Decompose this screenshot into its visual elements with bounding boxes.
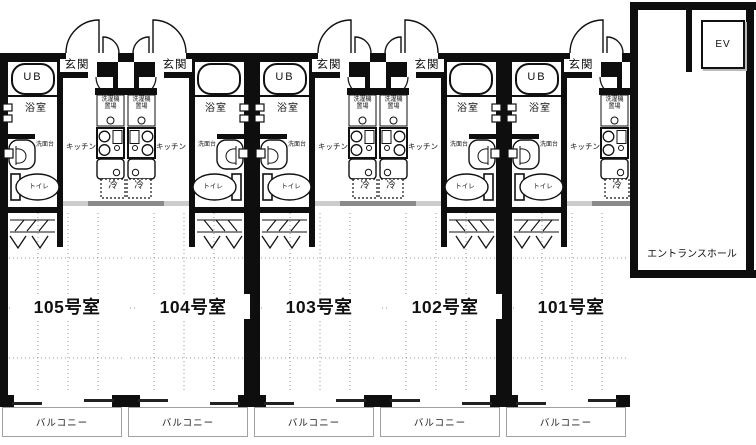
- floorplan-art: [504, 0, 630, 445]
- laundry-icon: [97, 95, 124, 126]
- closet-icon: [262, 220, 307, 248]
- sliding-door: [63, 201, 126, 206]
- laundry-icon: [349, 95, 376, 126]
- washstand-icon: [469, 140, 500, 169]
- sliding-door: [378, 201, 441, 206]
- washstand-icon: [508, 140, 539, 169]
- room-number-label: 101号室: [514, 294, 628, 319]
- balcony-window: [264, 399, 366, 405]
- laundry-icon: [128, 95, 155, 126]
- hall-wall-stub: [686, 10, 692, 72]
- elevator-box: EV: [701, 20, 745, 69]
- elevator-label: EV: [715, 39, 730, 50]
- entry-door-arc: [385, 20, 438, 53]
- room-number-label: 104号室: [136, 294, 250, 319]
- entrance-hall-label: エントランスホール: [638, 245, 746, 260]
- fridge-icon: [101, 179, 125, 198]
- entry-door-arc: [66, 20, 119, 53]
- floorplan-art: [378, 0, 504, 445]
- floorplan-art: [252, 0, 378, 445]
- laundry-icon: [601, 95, 628, 126]
- balcony-window: [138, 399, 240, 405]
- closet-icon: [10, 220, 55, 248]
- laundry-icon: [380, 95, 407, 126]
- stove-icon: [601, 128, 628, 158]
- balcony-label: バルコニー: [414, 415, 466, 429]
- room-number-label: 105号室: [10, 294, 124, 319]
- stove-icon: [128, 128, 155, 158]
- hall-wall-right: [746, 2, 754, 278]
- stove-icon: [97, 128, 124, 158]
- unit-bath-tub: [264, 64, 306, 94]
- hall-wall-top: [630, 2, 756, 10]
- balcony: バルコニー: [254, 407, 374, 437]
- balcony-window: [12, 399, 114, 405]
- sink-icon: [97, 159, 124, 179]
- entry-door-arc: [570, 20, 623, 53]
- sliding-door: [126, 201, 189, 206]
- toilet-icon: [11, 174, 59, 200]
- sink-icon: [349, 159, 376, 179]
- washstand-icon: [217, 140, 248, 169]
- fridge-icon: [379, 179, 403, 198]
- floor-plan: 玄関 UB 浴室 洗面台 トイレ キッチン 洗濯機 置場 冷 105号室 バルコ…: [0, 0, 756, 445]
- toilet-icon: [515, 174, 563, 200]
- sink-icon: [380, 159, 407, 179]
- room-number-label: 103号室: [262, 294, 376, 319]
- balcony: バルコニー: [128, 407, 248, 437]
- unit-102: 玄関 浴室 洗面台 トイレ キッチン 洗濯機 置場 冷 102号室 バルコニー: [378, 0, 504, 445]
- closet-icon: [197, 220, 242, 248]
- closet-icon: [449, 220, 494, 248]
- unit-bath-tub: [516, 64, 558, 94]
- stove-icon: [380, 128, 407, 158]
- hall-wall-bottom: [630, 270, 756, 278]
- unit-bath-tub: [12, 64, 54, 94]
- toilet-icon: [445, 174, 493, 200]
- balcony-window: [516, 399, 618, 405]
- balcony-label: バルコニー: [162, 415, 214, 429]
- room-number-label: 102号室: [388, 294, 502, 319]
- unit-105: 玄関 UB 浴室 洗面台 トイレ キッチン 洗濯機 置場 冷 105号室 バルコ…: [0, 0, 126, 445]
- balcony-label: バルコニー: [288, 415, 340, 429]
- floorplan-art: [126, 0, 252, 445]
- unit-104: 玄関 浴室 洗面台 トイレ キッチン 洗濯機 置場 冷 104号室 バルコニー: [126, 0, 252, 445]
- balcony-label: バルコニー: [36, 415, 88, 429]
- balcony: バルコニー: [2, 407, 122, 437]
- washstand-icon: [256, 140, 287, 169]
- sink-icon: [601, 159, 628, 179]
- sliding-door: [567, 201, 630, 206]
- balcony-window: [390, 399, 492, 405]
- sliding-door: [315, 201, 378, 206]
- closet-icon: [514, 220, 559, 248]
- balcony: バルコニー: [380, 407, 500, 437]
- unit-bath-tub: [198, 64, 240, 94]
- toilet-icon: [263, 174, 311, 200]
- unit-103: 玄関 UB 浴室 洗面台 トイレ キッチン 洗濯機 置場 冷 103号室 バルコ…: [252, 0, 378, 445]
- entry-door-arc: [133, 20, 186, 53]
- fridge-icon: [127, 179, 151, 198]
- balcony-label: バルコニー: [540, 415, 592, 429]
- fridge-icon: [605, 179, 629, 198]
- toilet-icon: [193, 174, 241, 200]
- stove-icon: [349, 128, 376, 158]
- floorplan-art: [0, 0, 126, 445]
- unit-101: 玄関 UB 浴室 洗面台 トイレ キッチン 洗濯機 置場 冷 101号室 バルコ…: [504, 0, 630, 445]
- unit-bath-tub: [450, 64, 492, 94]
- entry-door-arc: [318, 20, 371, 53]
- balcony: バルコニー: [506, 407, 626, 437]
- hall-wall-left: [630, 2, 638, 278]
- washstand-icon: [4, 140, 35, 169]
- fridge-icon: [353, 179, 377, 198]
- sink-icon: [128, 159, 155, 179]
